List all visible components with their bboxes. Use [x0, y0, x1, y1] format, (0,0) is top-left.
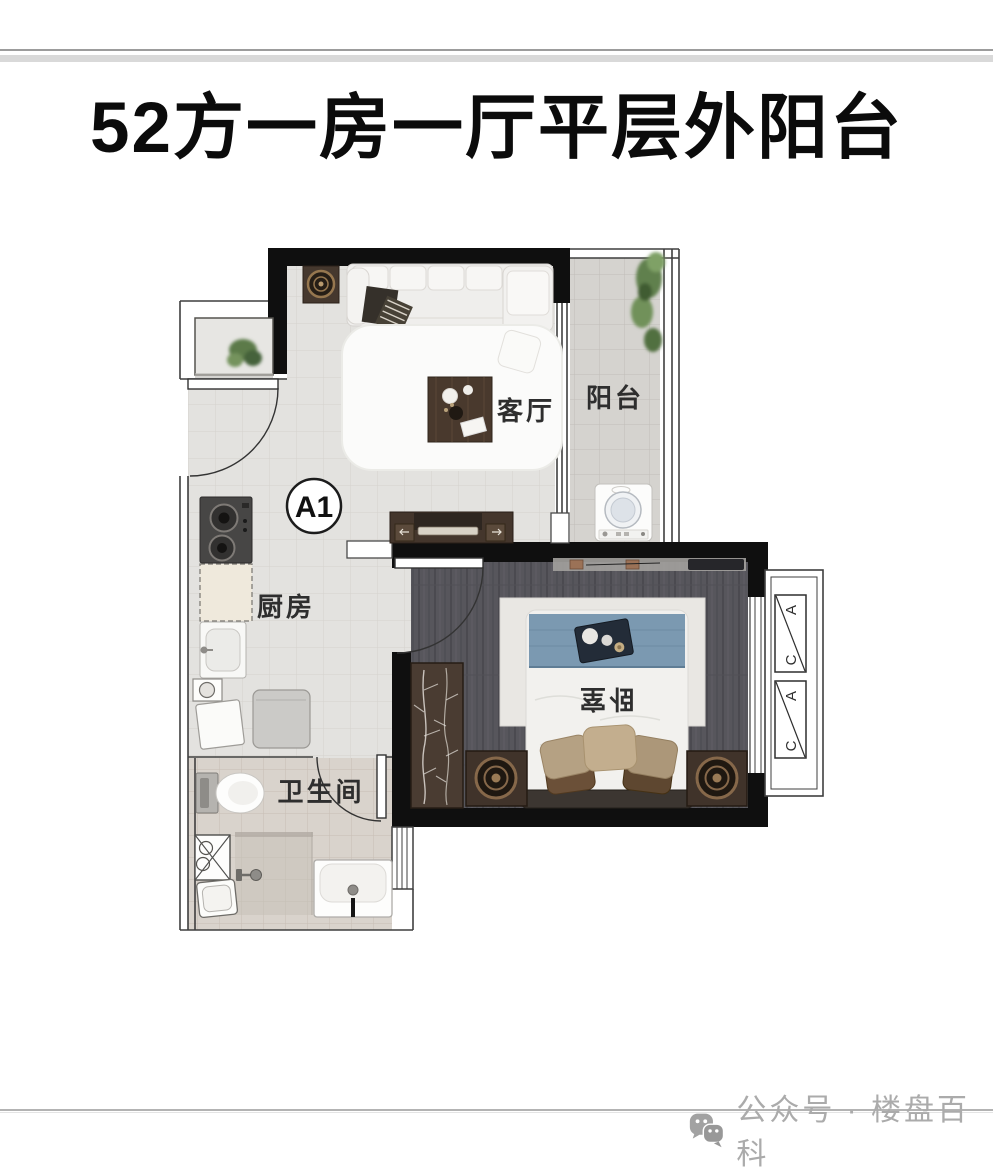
kitchen-cart [195, 699, 244, 749]
floorplan-drawing: A C A C [0, 0, 993, 1169]
footer-account-label: 公众号 · 楼盘百科 [736, 1085, 993, 1169]
wardrobe [411, 663, 463, 808]
washing-machine [595, 484, 652, 541]
ac-label-c: C [783, 740, 800, 751]
living-room-label: 客厅 [497, 396, 555, 426]
unit-badge: A1 [287, 479, 341, 533]
bedroom-tv-shelf [553, 558, 746, 571]
shower-area [235, 832, 313, 915]
corner-mat [303, 266, 339, 303]
nightstand-left [466, 751, 527, 806]
bedroom-label: 卧室 [577, 684, 635, 714]
service-duct [392, 827, 413, 930]
refrigerator [253, 690, 310, 748]
ac-platform: A C A C [765, 570, 823, 796]
unit-badge-label: A1 [295, 491, 333, 524]
coffee-table [428, 377, 492, 442]
partition-cap [347, 541, 392, 558]
ac-unit-1: A C [775, 595, 806, 672]
bedroom-tv [688, 559, 744, 570]
ac-label-a: A [783, 605, 800, 615]
bedroom-door-threshold [393, 566, 411, 654]
wechat-icon [686, 1109, 728, 1149]
stove [200, 497, 252, 563]
laundry-basin [195, 835, 230, 880]
ac-label-a: A [783, 691, 800, 701]
footer: 公众号 · 楼盘百科 [686, 1108, 993, 1150]
sofa [347, 264, 553, 334]
balcony-door-jamb [551, 513, 569, 543]
kitchen-label: 厨房 [257, 592, 315, 622]
vanity-sink [314, 860, 392, 917]
ac-label-c: C [783, 654, 800, 665]
ac-unit-2: A C [775, 681, 806, 758]
floorplan-page: 52方一房一厅平层外阳台 [0, 0, 993, 1169]
kitchen-counter [200, 564, 252, 621]
kitchen-sink [200, 622, 246, 678]
balcony-label: 阳台 [586, 383, 644, 413]
bathroom-label: 卫生间 [277, 777, 364, 807]
tv-console [390, 512, 513, 543]
kitchen-appliance-small [193, 679, 222, 701]
entry-planter [195, 318, 273, 378]
toilet [196, 773, 264, 813]
mop-basin [196, 879, 237, 918]
nightstand-right [687, 751, 747, 806]
